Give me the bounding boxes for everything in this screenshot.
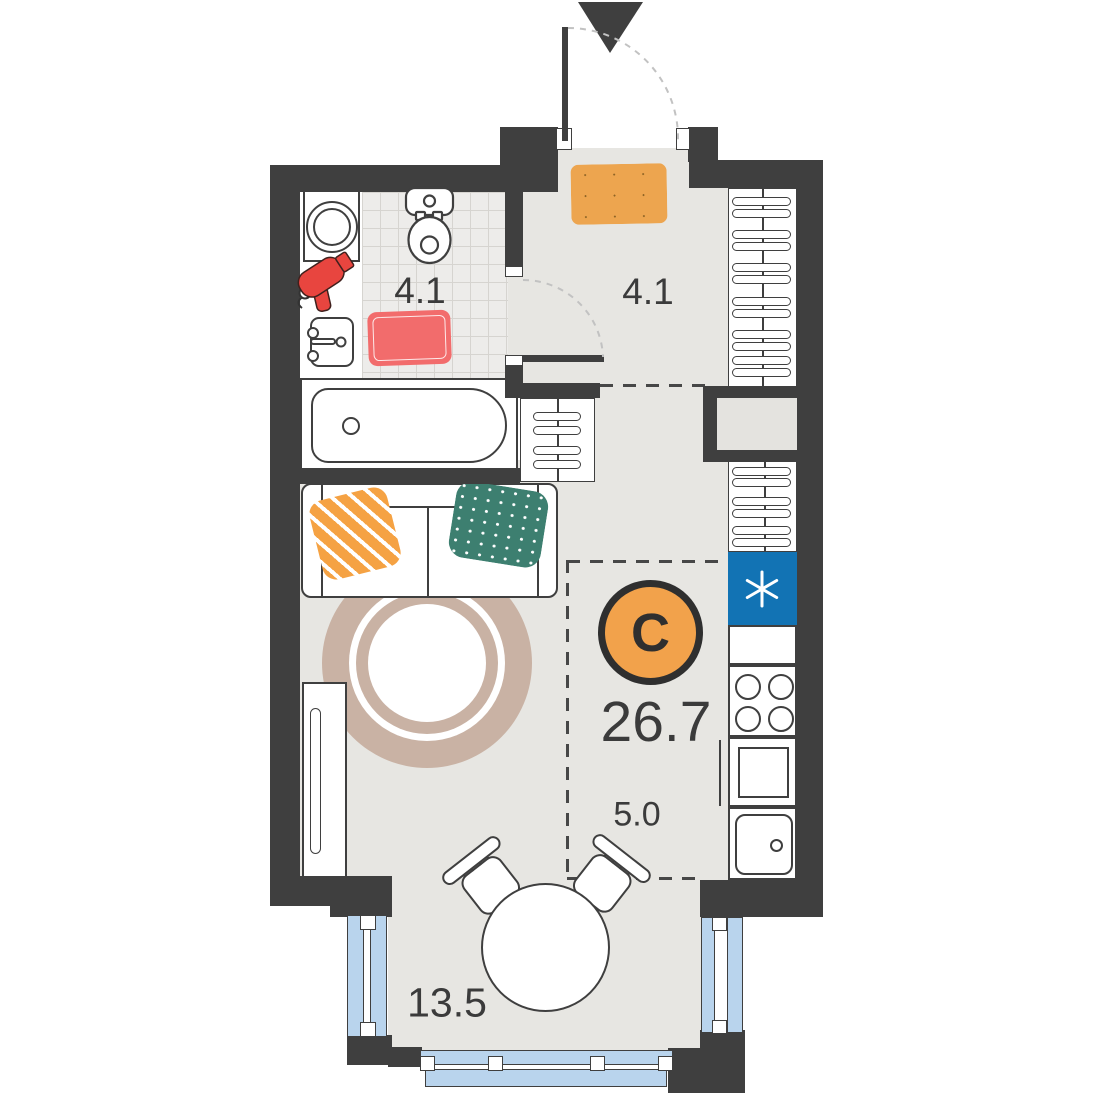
kitchen-counter-icon	[728, 737, 797, 807]
hanger-icon	[732, 509, 791, 518]
wall-left	[270, 165, 300, 905]
hanger-icon	[732, 309, 791, 318]
washer-drum-inner	[313, 208, 351, 246]
wall-kitchen-bottom	[700, 880, 823, 917]
window-icon	[425, 1069, 667, 1087]
studio-badge-letter: С	[631, 606, 670, 660]
window-mullion	[590, 1056, 605, 1071]
studio-floor-plan: 4.1 4.1 С 26.7 5.0 13.5	[0, 0, 1093, 1093]
wall-bay-left-bottom	[347, 1035, 392, 1065]
zone-line-kitchen-left	[566, 560, 569, 880]
studio-badge: С	[598, 580, 703, 685]
hanger-icon	[732, 242, 791, 251]
entry-door-jamb	[676, 128, 690, 150]
hanger-icon	[533, 412, 581, 421]
window-mullion	[360, 915, 376, 930]
entry-door-icon	[562, 27, 568, 141]
burner-icon	[735, 706, 761, 732]
zone-line-hallway-kitchen	[600, 384, 705, 387]
wall-bay-left-step	[330, 876, 392, 917]
kitchen-counter-icon	[728, 625, 797, 665]
kitchen-sink-icon	[728, 807, 797, 880]
hanger-icon	[732, 368, 791, 377]
pillow-icon	[447, 479, 551, 570]
zone-line-kitchen-top	[567, 560, 728, 563]
sink-basin	[735, 814, 793, 875]
bath-mat-icon	[367, 310, 452, 367]
burner-icon	[735, 674, 761, 700]
window-mullion	[420, 1056, 435, 1071]
stove-icon	[728, 665, 797, 737]
doormat-icon	[570, 163, 667, 225]
counter-inset	[738, 747, 789, 798]
shoe-closet-icon	[520, 398, 595, 482]
sofa-seat-divider	[427, 507, 429, 596]
zone-line-kitchen-bottom	[567, 877, 700, 880]
wall-closet-top	[505, 383, 600, 398]
bathtub-drain	[342, 417, 360, 435]
window-icon	[727, 917, 743, 1033]
hanger-icon	[533, 460, 581, 469]
wardrobe-hangers-icon	[728, 188, 797, 387]
ventilation-shaft	[717, 398, 797, 450]
hanger-icon	[732, 330, 791, 339]
window-mullion	[360, 1022, 376, 1037]
bathroom-area-label: 4.1	[394, 270, 445, 312]
washing-machine-icon	[303, 188, 360, 262]
window-icon	[347, 915, 364, 1037]
living-area-label: 13.5	[407, 980, 487, 1027]
wardrobe-hangers-icon	[728, 460, 797, 552]
wall-bathroom-bottom	[270, 468, 520, 484]
counter-edge-line	[719, 740, 721, 806]
dining-table-icon	[481, 883, 610, 1012]
hanger-icon	[732, 497, 791, 506]
hanger-icon	[732, 538, 791, 547]
window-icon	[701, 917, 715, 1033]
entry-door-jamb	[556, 128, 572, 150]
hanger-icon	[732, 467, 791, 476]
wall-entry-right	[688, 127, 718, 162]
hanger-icon	[732, 478, 791, 487]
entry-door-swing-arc	[568, 28, 678, 140]
hanger-icon	[732, 263, 791, 272]
kitchen-area-label: 5.0	[613, 796, 660, 835]
window-icon	[420, 1050, 673, 1065]
window-mullion	[658, 1056, 673, 1071]
hanger-icon	[732, 230, 791, 239]
cabinet-icon	[302, 682, 347, 878]
wall-bathroom-right-upper	[505, 165, 523, 277]
hanger-icon	[732, 275, 791, 284]
window-icon	[370, 915, 387, 1037]
bathroom-sink-icon	[310, 317, 354, 367]
hanger-icon	[732, 197, 791, 206]
window-mullion	[712, 917, 727, 931]
wall-bay-bottom-right	[668, 1048, 745, 1093]
hanger-icon	[732, 297, 791, 306]
wall-bathroom-top	[270, 165, 523, 192]
bathroom-door-jamb	[505, 355, 523, 366]
window-mullion	[712, 1020, 727, 1034]
hanger-icon	[533, 446, 581, 455]
sink-drain	[770, 839, 783, 852]
total-area-label: 26.7	[601, 689, 712, 755]
hanger-icon	[732, 209, 791, 218]
entrance-arrow-icon	[578, 2, 643, 53]
rug-center	[368, 604, 486, 722]
window-mullion	[488, 1056, 503, 1071]
wall-right	[797, 160, 823, 917]
wall-bay-bottom-left	[388, 1047, 422, 1067]
refrigerator-icon	[728, 552, 797, 625]
bathtub-basin	[311, 388, 507, 463]
cabinet-handle	[310, 708, 321, 854]
hallway-area-label: 4.1	[622, 271, 673, 313]
hanger-icon	[533, 426, 581, 435]
hanger-icon	[732, 342, 791, 351]
burner-icon	[768, 706, 794, 732]
bathroom-door-jamb	[505, 266, 523, 277]
hanger-icon	[732, 526, 791, 535]
burner-icon	[768, 674, 794, 700]
hanger-icon	[732, 356, 791, 365]
